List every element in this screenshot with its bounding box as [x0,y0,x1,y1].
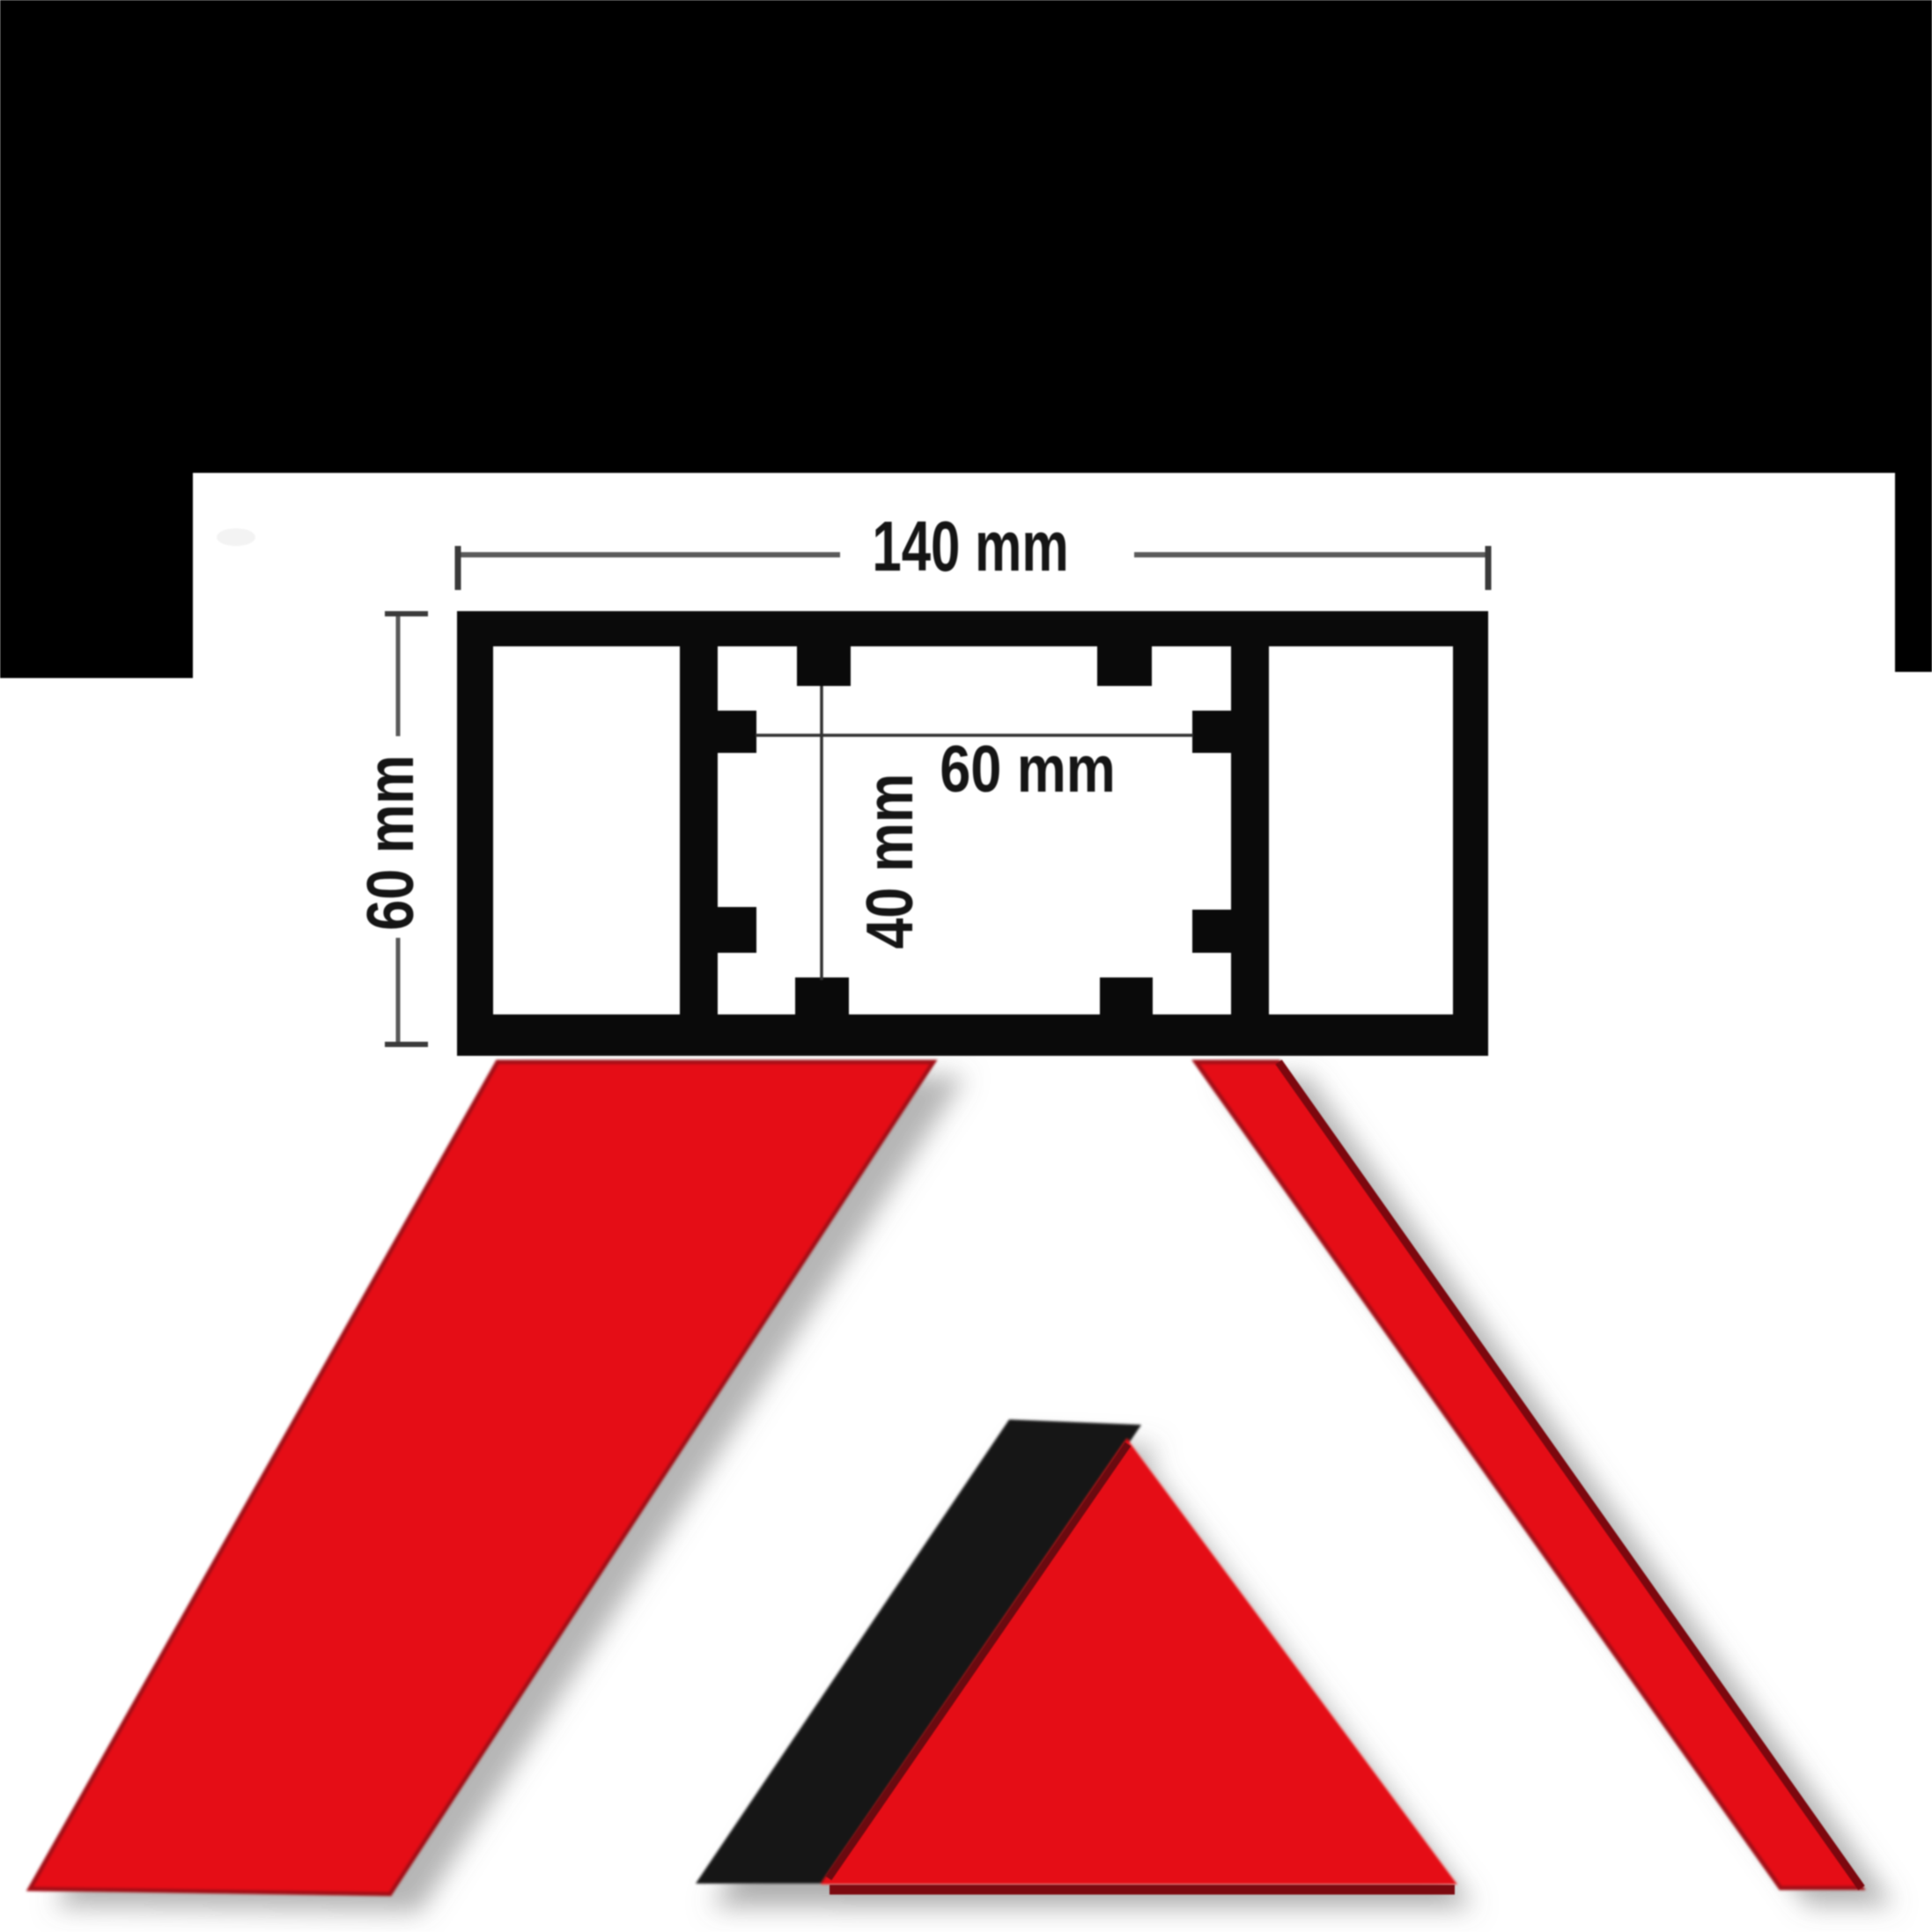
svg-text:60 mm: 60 mm [940,732,1116,806]
svg-text:40 mm: 40 mm [852,773,926,949]
svg-text:140 mm: 140 mm [872,506,1068,586]
svg-text:60 mm: 60 mm [353,755,427,931]
